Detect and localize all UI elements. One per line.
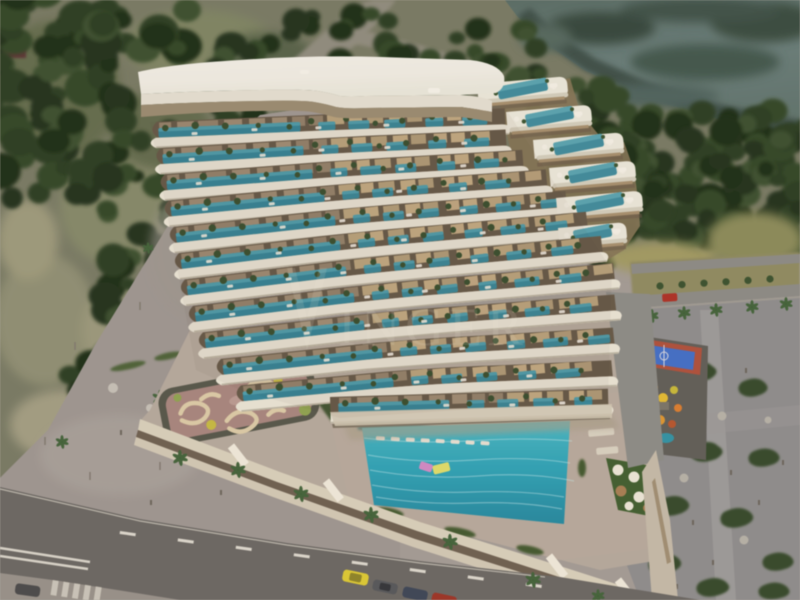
svg-text:INGER: INGER	[338, 297, 528, 357]
